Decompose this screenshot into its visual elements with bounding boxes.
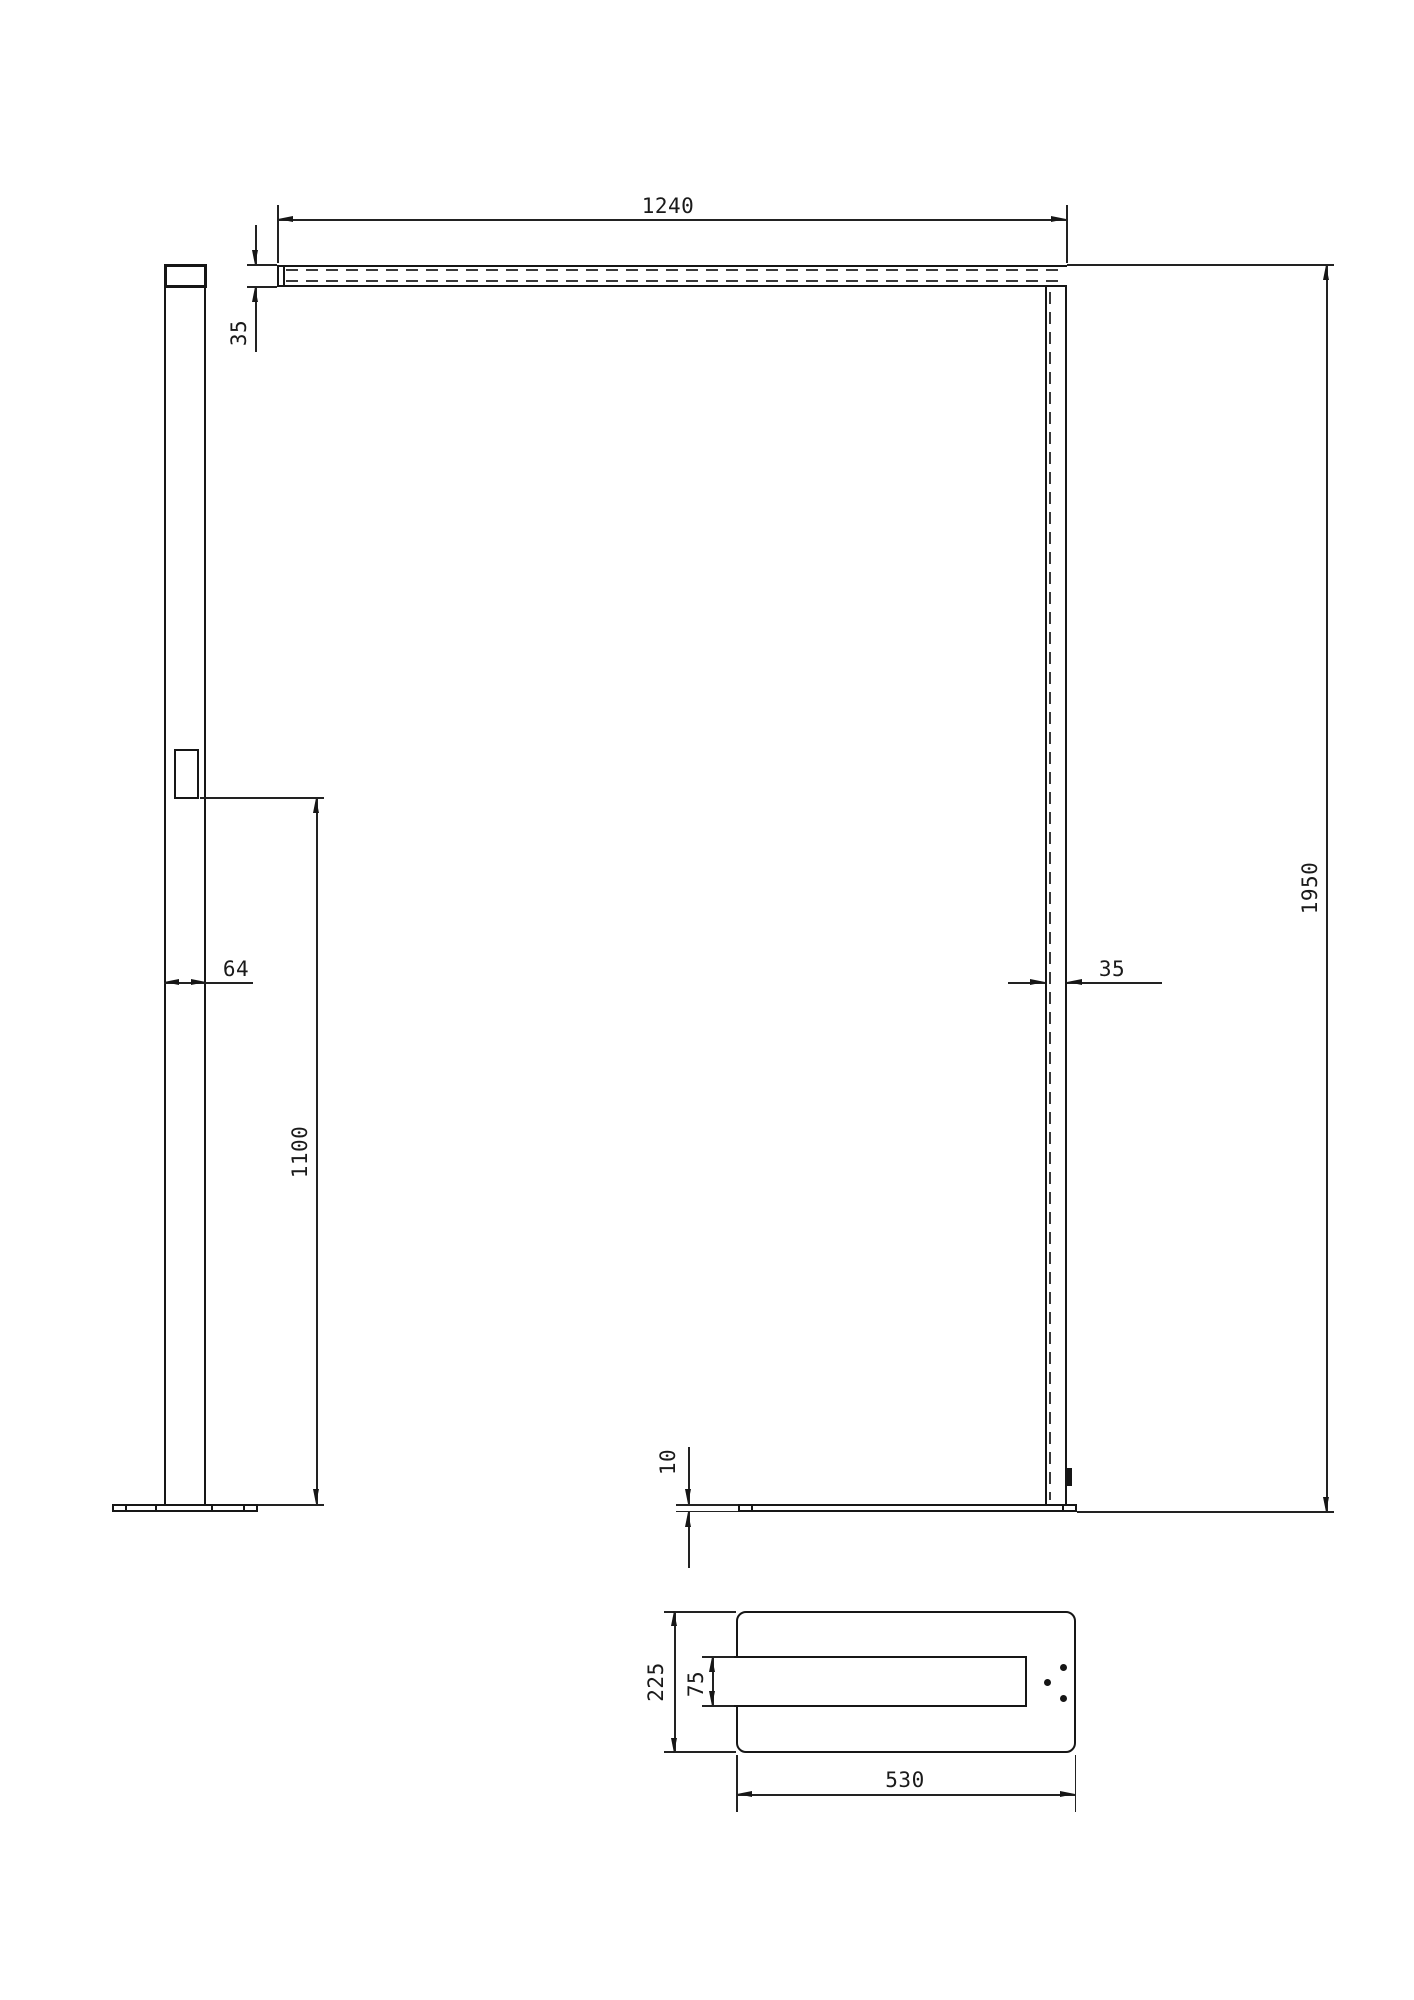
side-base-plate [112, 1504, 258, 1512]
dim-75-ext-bottom [702, 1705, 734, 1707]
side-pole-right-edge [204, 265, 206, 1504]
dim-1240-ext-left [277, 205, 279, 263]
front-beam-hidden-line-bottom [286, 280, 1060, 282]
dim-75-arrow-down [709, 1691, 715, 1706]
side-beam-cross-section [164, 264, 207, 288]
dim-1100-line [316, 798, 318, 1504]
front-beam-left-cap [277, 265, 279, 287]
front-pole-left-edge [1045, 287, 1047, 1504]
side-pole-left-edge [164, 265, 166, 1504]
dim-75-ext-top [702, 1656, 734, 1658]
dim-35r-arrow-right [1030, 979, 1045, 985]
mounting-hole-left [1044, 1679, 1051, 1686]
dim-225-arrow-down [671, 1738, 677, 1753]
dim-530-line [737, 1794, 1076, 1796]
dim-10-arrow-down [685, 1489, 691, 1504]
side-base-tick-4 [243, 1504, 245, 1512]
dim-1100-arrow-down [313, 1489, 319, 1504]
front-beam-bottom-edge [277, 285, 1067, 287]
front-beam-left-cap-inner [283, 267, 285, 285]
dim-225-label: 225 [644, 1662, 668, 1701]
front-pole-connector [1066, 1468, 1072, 1486]
dim-530-arrow-right [1060, 1791, 1075, 1797]
dim-1240-ext-right [1066, 205, 1068, 263]
dim-530-label: 530 [885, 1768, 924, 1792]
dim-64-arrow-right [191, 979, 206, 985]
front-base-plate [738, 1504, 1077, 1512]
front-pole-right-edge [1065, 287, 1067, 1504]
dim-225-arrow-up [671, 1611, 677, 1626]
dim-1950-line [1326, 265, 1328, 1512]
dim-1240-arrow-left [278, 216, 293, 222]
mounting-hole-top [1060, 1664, 1067, 1671]
dim-35t-arrow-down [252, 250, 258, 265]
dim-10-arrow-up [685, 1512, 691, 1527]
front-base-tick-left [751, 1504, 753, 1512]
dim-35r-label: 35 [1099, 957, 1125, 981]
front-beam-top-edge [277, 265, 1067, 267]
dim-1100-arrow-up [313, 798, 319, 813]
side-base-tick-3 [211, 1504, 213, 1512]
front-base-tick-right [1062, 1504, 1064, 1512]
dim-1950-arrow-up [1323, 265, 1329, 280]
dim-530-ext-left [736, 1755, 738, 1812]
dim-35t-label: 35 [227, 320, 251, 346]
dim-530-arrow-left [737, 1791, 752, 1797]
dim-64-label: 64 [223, 957, 249, 981]
base-plate-slot [733, 1656, 1027, 1707]
dim-1240-line [277, 219, 1067, 221]
dim-35r-arrow-left [1067, 979, 1082, 985]
front-beam-hidden-line-top [286, 269, 1060, 271]
dim-1950-arrow-down [1323, 1497, 1329, 1512]
dim-1100-label: 1100 [288, 1126, 312, 1179]
dim-1240-label: 1240 [642, 194, 695, 218]
dim-225-line [674, 1611, 676, 1753]
dim-10-label: 10 [656, 1449, 680, 1475]
dim-75-arrow-up [709, 1657, 715, 1672]
dim-64-arrow-left [164, 979, 179, 985]
dim-1100-ext-top [200, 797, 324, 799]
front-pole-hidden-line [1049, 292, 1051, 1500]
dim-75-label: 75 [684, 1671, 708, 1697]
dim-10-ext-top [676, 1504, 738, 1506]
dim-1950-label: 1950 [1298, 862, 1322, 915]
side-control-switch [174, 749, 199, 799]
dim-1240-arrow-right [1051, 216, 1066, 222]
dim-530-ext-right [1075, 1755, 1077, 1812]
dim-1950-ext-bottom [1077, 1511, 1334, 1513]
side-base-tick-1 [125, 1504, 127, 1512]
dim-1100-ext-bottom [258, 1504, 324, 1506]
dim-1950-ext-top [1067, 264, 1334, 266]
side-base-tick-2 [155, 1504, 157, 1512]
technical-drawing-floor-lamp: 64 1100 1240 [0, 0, 1414, 2000]
dim-35t-arrow-up [252, 287, 258, 302]
mounting-hole-bottom [1060, 1695, 1067, 1702]
